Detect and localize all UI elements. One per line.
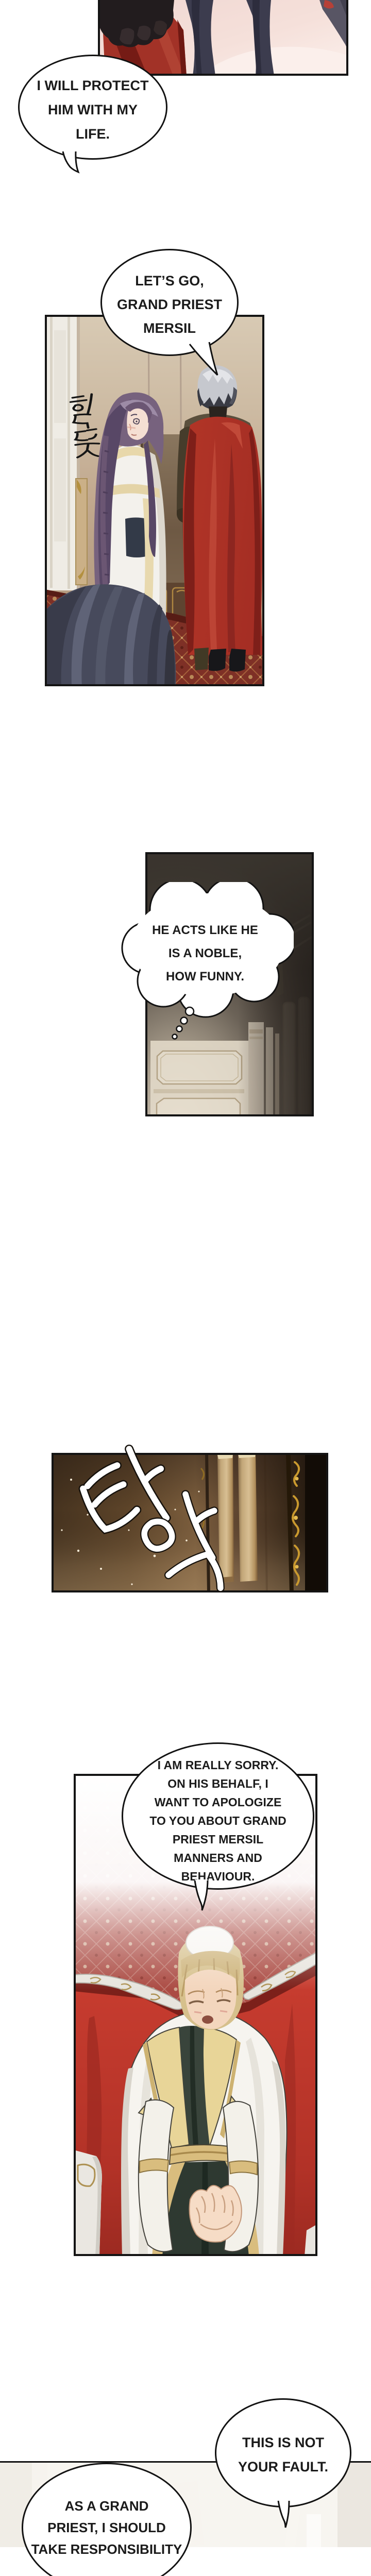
svg-text:HE ACTS LIKE HE: HE ACTS LIKE HE — [152, 923, 258, 937]
svg-text:HOW FUNNY.: HOW FUNNY. — [166, 970, 244, 984]
svg-text:IS A NOBLE,: IS A NOBLE, — [168, 946, 242, 960]
